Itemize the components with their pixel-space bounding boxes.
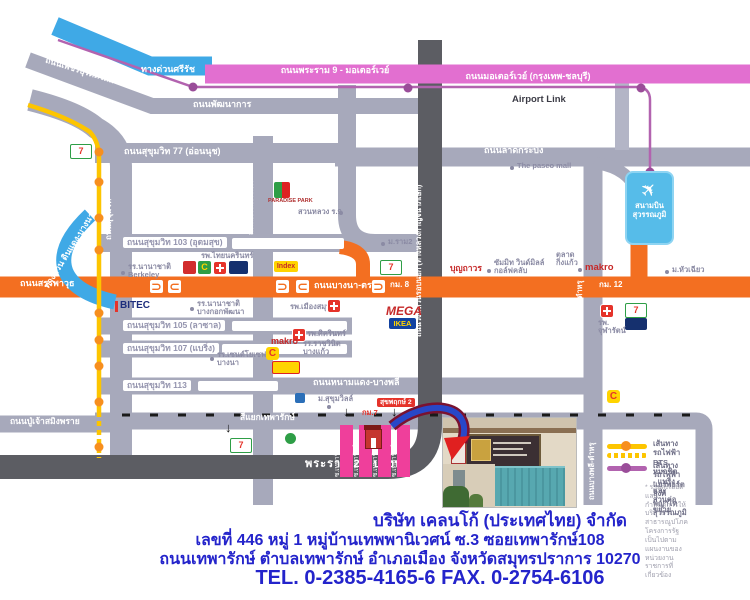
photo-sign-text-line [493, 442, 531, 444]
ratwinit-line2: บางแก้ว [303, 348, 341, 356]
seven-eleven-lotus-logo: 7 [230, 438, 252, 453]
store-logo-red [183, 261, 196, 274]
makro-kingkaew-logo: makro [585, 263, 614, 273]
road-label-srinagarindra: ถนนศรีนครินทร์ [246, 180, 256, 235]
photo-sign-text-line [493, 448, 523, 450]
soi-104-label: ซ.เทพารักษ์ 104 [333, 432, 343, 477]
airport-link-label: Airport Link [512, 95, 566, 105]
summit-windmill-label: ซัมมิท วินด์มิลล์ กอล์ฟคลับ [494, 259, 544, 275]
road-label-phatthanakan: ถนนพัฒนาการ [193, 100, 251, 109]
ratwinit-school-label: รร.ราชวินิต บางแก้ว [303, 340, 341, 356]
sikarin-hospital-label: รพ.ศิครินทร์ [307, 330, 346, 338]
kingkaew-market-label: ตลาด กิ่งแก้ว [556, 251, 578, 267]
seven-eleven-lotus-logo: 7 [380, 260, 402, 275]
legend-bts-extension-line [607, 453, 647, 458]
km7-marker: กม.7 [362, 409, 378, 417]
uturn-icon: ⊃ [372, 280, 385, 293]
store-logo-navy [229, 261, 248, 274]
boonthavorn-label: บุญถาวร [450, 264, 482, 273]
company-phone-fax: TEL. 0-2385-4165-6 FAX. 0-2754-6106 [120, 567, 740, 590]
summit-line2: กอล์ฟคลับ [494, 267, 544, 275]
hospital-cross-icon [600, 304, 614, 318]
bangkok-patana-school-label: รร.นานาชาติ บางกอกพัฒนา [197, 300, 244, 316]
chularat-hospital-label: รพ. จุฬารัตน์ [598, 319, 626, 335]
paradise-park-label: PARADISE PARK [268, 199, 313, 205]
makro-srinagarindra-logo: makro [271, 337, 298, 346]
seven-eleven-lotus-logo: 7 [625, 303, 647, 318]
landmark-dot [578, 268, 582, 272]
road-label-sukhumvit113: ถนนสุขุมวิท 113 [123, 380, 191, 391]
photo-sign-text-line [493, 454, 527, 456]
road-label-namdaeng: ถนนหนามแดง-บางพลี [313, 378, 399, 387]
st-joseph-line2: บางนา [217, 359, 266, 367]
village-label: ม.สุขุมวิลล์ [318, 395, 353, 403]
road-label-motorway: ถนนมอเตอร์เวย์ (กรุงเทพ-ชลบุรี) [448, 72, 608, 81]
landmark-dot [510, 166, 514, 170]
hospital-cross-icon [213, 261, 227, 275]
suvarnabhumi-airport-box: ✈ สนามบิน สุวรรณภูมิ [625, 171, 674, 245]
map-page: ทางด่วนศรีรัช ถนนพระราม 9 - มอเตอร์เวย์ … [0, 0, 750, 600]
uturn-icon: ⊂ [168, 280, 181, 293]
bkk-patana-text: บางกอกพัฒนา [197, 308, 244, 316]
legend-arl-title: เส้นทางรถไฟฟ้า [653, 461, 687, 480]
soi-106-label: ซ.เทพารักษ์ 106 [352, 432, 362, 477]
road-band [232, 238, 344, 249]
airport-label-2: สุวรรณภูมิ [627, 211, 672, 220]
landmark-dot [487, 269, 491, 273]
bitec-logo: BITEC [115, 301, 150, 312]
airport-link-station-dot [404, 84, 413, 93]
chularat-line2: จุฬารัตน์ [598, 327, 626, 335]
huachiew-university-label: ม.หัวเฉียว [672, 266, 704, 274]
st-joseph-school-label: รร.เซนต์โยเซฟ บางนา [217, 351, 266, 367]
landmark-dot [210, 357, 214, 361]
photo-plants [443, 486, 469, 507]
big-c-logo: C [266, 347, 279, 360]
road-label-sukhumvit103: ถนนสุขุมวิท 103 (อุดมสุข) [123, 237, 227, 248]
thai-nakarin-hospital-label: รพ.ไทยนครินทร์ [201, 252, 253, 260]
uturn-icon: ⊃ [276, 280, 289, 293]
suan-luang-label: สวนหลวง ร.9 [298, 208, 342, 216]
photo-plants [469, 494, 483, 507]
route-arrow [380, 390, 490, 470]
uturn-icon: ⊃ [150, 280, 163, 293]
airport-link-station-dot [637, 84, 646, 93]
landmark-dot [190, 307, 194, 311]
km8-marker: กม. 8 [390, 281, 409, 289]
hospital-cross-icon [327, 299, 341, 313]
seven-eleven-lotus-logo: 7 [70, 144, 92, 159]
down-arrow-icon: ↓ [225, 420, 232, 435]
airport-link-station-dot [189, 83, 198, 92]
index-logo: Index [274, 261, 298, 272]
landmark-dot [665, 270, 669, 274]
road-label-srirat: ทางด่วนศรีรัช [141, 65, 195, 74]
store-logo-navy [625, 318, 647, 330]
ram2-university-label: ม.ราม2 [388, 238, 412, 246]
ikea-logo: IKEA [389, 318, 416, 329]
road-band [198, 381, 278, 391]
road-label-bangphli-tamru-2: ถนนบางพลี-ตำหรุ [587, 442, 597, 500]
green-store-logo [285, 433, 296, 444]
down-arrow-icon: ↓ [343, 404, 350, 419]
big-c-logo: C [607, 390, 620, 403]
paseo-mall-label: The paseo mall [517, 162, 571, 170]
km12-marker: กม. 12 [599, 281, 622, 289]
paradise-park-icon [274, 182, 290, 198]
mega-bangna-logo: MEGA [386, 305, 422, 318]
road-label-rama9: ถนนพระราม 9 - มอเตอร์เวย์ [270, 66, 400, 75]
blue-landmark-icon [295, 393, 305, 403]
arrowhead [444, 436, 470, 460]
photo-gate [495, 466, 565, 506]
market-line2: กิ่งแก้ว [556, 259, 578, 267]
landmark-dot [381, 242, 385, 246]
road-label-sukhumvit107: ถนนสุขุมวิท 107 (แบริ่ง) [123, 343, 219, 354]
landmark-dot [121, 271, 125, 275]
store-logo-green: C [198, 261, 211, 274]
road-label-sukhumvit77: ถนนสุขุมวิท 77 (อ่อนนุช) [124, 147, 221, 156]
road-label-bangphli-tamru: ถนนบางพลี-ตำหรุ [575, 280, 585, 338]
road-label-sukhumvit: ถนนสุขุมวิท [104, 199, 114, 240]
landmark-dot [327, 405, 331, 409]
road-label-sukhumvit105: ถนนสุขุมวิท 105 (ลาซาล) [123, 320, 225, 331]
legend-arl-dot [621, 463, 631, 473]
berkeley-text: Berkeley [128, 271, 171, 279]
berkeley-school-label: รร.นานาชาติ Berkeley [128, 263, 171, 279]
road-label-sanphawut: ถนนสรรพาวุธ [20, 279, 74, 288]
road-label-thepharak-junction: สี่แยกเทพารักษ์ [240, 413, 295, 422]
road-label-latkrabang: ถนนลาดกระบัง [484, 146, 543, 155]
landmark-dot [339, 211, 343, 215]
road-label-puchao: ถนนปู่เจ้าสมิงพราย [10, 417, 80, 426]
uturn-icon: ⊂ [296, 280, 309, 293]
road-label-kingkaew: ถนนกิ่งแก้ว [576, 181, 586, 220]
legend-bts-dot [621, 441, 631, 451]
yellow-store-logo [272, 361, 300, 374]
